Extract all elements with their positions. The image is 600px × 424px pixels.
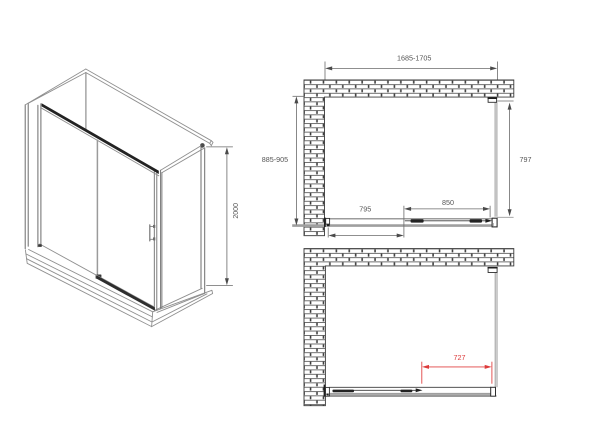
svg-text:850: 850 [442,198,454,207]
svg-text:797: 797 [520,155,532,164]
svg-text:795: 795 [359,205,371,214]
svg-text:885-905: 885-905 [262,155,288,164]
svg-text:1685-1705: 1685-1705 [397,53,431,62]
svg-text:727: 727 [454,353,466,362]
svg-text:2000: 2000 [233,203,240,219]
